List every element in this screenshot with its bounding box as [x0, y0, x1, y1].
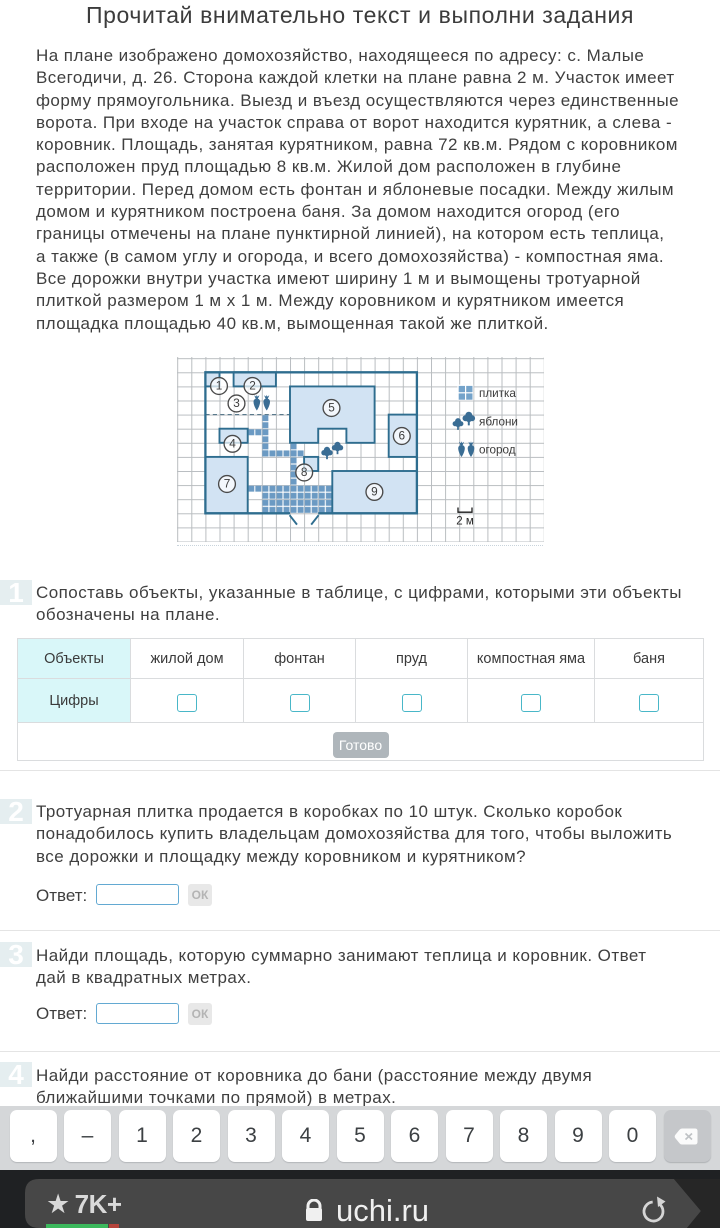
svg-text:яблони: яблони [479, 415, 518, 428]
svg-text:9: 9 [371, 485, 378, 499]
svg-text:6: 6 [399, 429, 406, 443]
svg-text:3: 3 [233, 396, 240, 410]
svg-text:2: 2 [249, 379, 256, 393]
svg-text:7: 7 [224, 477, 231, 491]
svg-text:8: 8 [301, 465, 308, 479]
svg-text:2 м: 2 м [456, 516, 474, 528]
svg-text:4: 4 [229, 437, 236, 451]
svg-text:5: 5 [328, 401, 335, 415]
svg-text:1: 1 [216, 379, 223, 393]
svg-text:огород: огород [479, 444, 516, 457]
svg-text:плитка: плитка [479, 387, 516, 400]
